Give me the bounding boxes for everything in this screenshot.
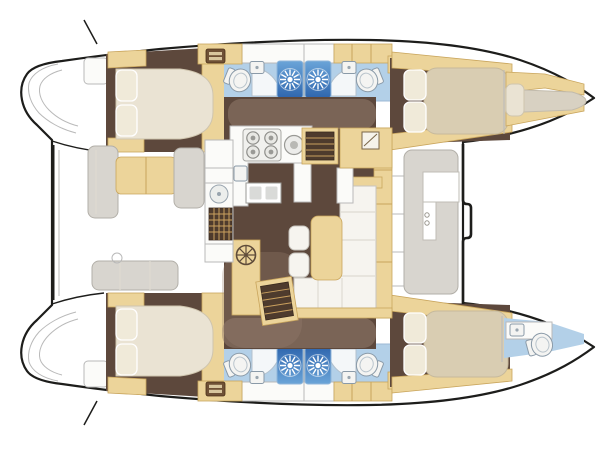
forward-seat-cutout — [423, 202, 436, 240]
catamaran-deck-plan — [0, 0, 600, 450]
stairs-to-starboard-hull — [302, 128, 338, 164]
pillow — [404, 70, 426, 100]
double-bed-mattress — [424, 68, 508, 134]
forepeak-berth — [504, 70, 586, 134]
stove-burner-icon — [265, 132, 277, 144]
hull-bathrooms — [198, 44, 412, 101]
spoked-wheel-icon — [237, 246, 256, 265]
stove-burner-icon — [247, 132, 259, 144]
saloon-stool — [289, 226, 309, 250]
cockpit-seat — [88, 146, 118, 218]
washbasin-icon — [250, 62, 264, 74]
vanity-counter — [242, 44, 334, 63]
forward-crossbeam — [463, 144, 471, 304]
fridge — [337, 168, 353, 203]
side-counter — [294, 163, 311, 202]
sink-basin — [249, 186, 262, 200]
davit-line — [84, 20, 97, 44]
berth-cushion — [506, 84, 524, 116]
washbasin-icon — [510, 324, 524, 336]
deck-grate-icon — [209, 208, 232, 240]
floor-plan-canvas — [0, 0, 600, 450]
cockpit-seat — [174, 148, 204, 208]
cabin-shelf — [108, 50, 146, 68]
shower-starburst-icon — [307, 69, 329, 91]
coachroof-shadow — [228, 99, 376, 129]
galley-appliance — [234, 166, 247, 181]
vent-grille-icon — [206, 49, 225, 63]
shower-starburst-icon — [279, 69, 301, 91]
saloon-table — [311, 216, 342, 280]
saloon-stool — [289, 253, 309, 277]
stern-locker — [84, 58, 108, 84]
stove-burner-icon — [247, 146, 259, 158]
round-sink — [217, 192, 221, 196]
pillow — [116, 105, 137, 136]
pillow — [404, 102, 426, 132]
stairs-to-port-hull — [256, 276, 298, 325]
stove-burner-icon — [290, 141, 298, 149]
stove-burner-icon — [265, 146, 277, 158]
forward-cabin — [390, 52, 512, 150]
bathroom-cabinet — [334, 44, 392, 63]
crew-berth-cushion — [524, 90, 586, 112]
seat-base — [294, 308, 392, 318]
forward-seat-cutout — [423, 172, 459, 202]
sink-basin — [265, 186, 278, 200]
cockpit-sunbed — [92, 261, 178, 290]
pillow — [116, 70, 137, 101]
washbasin-icon — [342, 62, 356, 74]
